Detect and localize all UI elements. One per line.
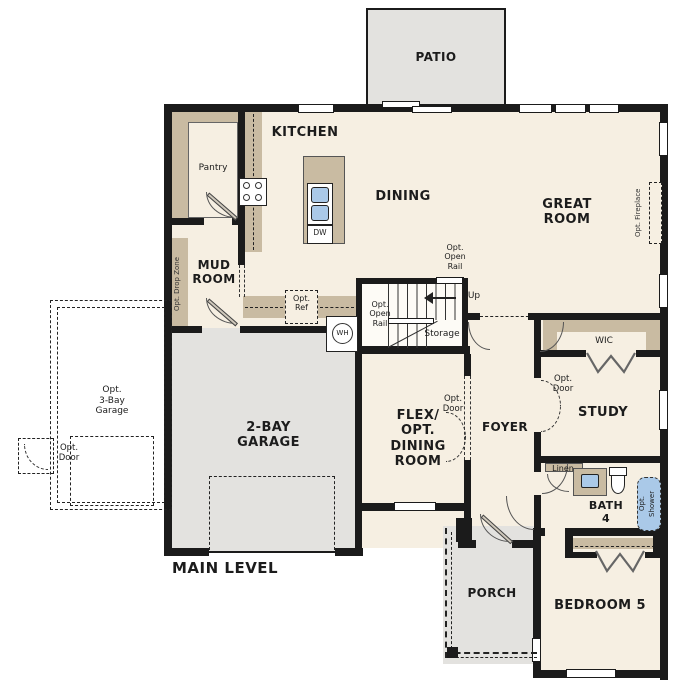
wall-greatroom-south	[528, 313, 665, 320]
burner-icon	[255, 194, 262, 201]
range-stove	[239, 178, 267, 206]
counter-br-dashline	[320, 307, 354, 308]
window-bedroom-bottom	[566, 669, 616, 678]
patio-label: PATIO	[366, 50, 506, 64]
porch-dash-left-1	[445, 528, 447, 658]
wall-flex-right-a	[464, 354, 471, 376]
porch-corner-post	[456, 518, 472, 542]
window-flex-bottom	[394, 502, 436, 511]
wall-hall-stub	[466, 313, 480, 320]
flex-label: FLEX/ OPT. DINING ROOM	[372, 408, 464, 469]
plan-title: MAIN LEVEL	[172, 560, 302, 578]
window-study-right	[659, 390, 668, 430]
bath-label: BATH 4	[583, 500, 629, 526]
up-label: Up	[462, 291, 486, 302]
pantry-wall-band-left	[172, 112, 188, 222]
water-heater-label: WH	[332, 329, 353, 337]
burner-icon	[243, 194, 250, 201]
garage-door-dashed	[209, 476, 335, 550]
mud-room-label: MUD ROOM	[188, 258, 240, 286]
toilet-bowl	[611, 475, 625, 494]
opt-open-rail-top-label: Opt. Open Rail	[434, 243, 476, 271]
bedroom-closet-shelf	[573, 538, 657, 549]
opt-garage-door-box	[18, 438, 54, 474]
wall-pantry-bottom-left	[172, 218, 204, 225]
closet-shelf-dashline	[575, 546, 655, 547]
opt-3bay-label: Opt. 3-Bay Garage	[86, 385, 138, 417]
wall-garage-bottom-left	[164, 548, 209, 556]
dining-label: DINING	[368, 189, 438, 204]
opt-fireplace-box	[649, 182, 662, 244]
patio-slider-panel-2	[412, 106, 452, 113]
opt-door-flex-label: Opt. Door	[436, 394, 470, 414]
pantry-wall-band-top	[172, 112, 238, 122]
opt-shower-label: Opt. Shower	[638, 480, 660, 528]
porch-dash-left-2	[451, 532, 452, 654]
wall-hall-right-a	[534, 463, 541, 472]
wall-flex-bottom-left	[356, 503, 396, 511]
wic-double-door	[586, 352, 636, 375]
sink-bowl-1	[311, 187, 329, 203]
wic-label: WIC	[584, 336, 624, 347]
opt-open-rail-left-label: Opt. Open Rail	[363, 300, 397, 328]
stair-rail-top	[436, 277, 464, 284]
wall-flex-bottom-right	[434, 503, 471, 511]
wall-bath-top	[534, 456, 665, 463]
wall-study-top-right	[636, 350, 665, 357]
wall-garage-right	[355, 326, 362, 556]
opt-door-garage-label: Opt. Door	[52, 443, 86, 463]
window-greatroom-top-3	[589, 104, 619, 113]
porch-dash-bottom-2	[451, 657, 537, 658]
window-greatroom-top-1	[519, 104, 552, 113]
dishwasher-label: DW	[307, 229, 333, 238]
closet-bottom-right	[645, 552, 662, 558]
window-greatroom-top-2	[555, 104, 586, 113]
stair-up-arrow-line	[432, 297, 456, 299]
opt-door-study-label: Opt. Door	[546, 374, 580, 394]
opt-drop-zone-label: Opt. Drop Zone	[173, 242, 187, 326]
linen-label: Linen	[543, 464, 583, 473]
opt-ref-label: Opt. Ref	[285, 294, 318, 313]
wall-study-left-a	[534, 357, 541, 378]
burner-icon	[243, 182, 250, 189]
opt-fireplace-label: Opt. Fireplace	[634, 178, 647, 248]
window-greatroom-right-1	[659, 122, 668, 156]
porch-dash-bottom-1	[445, 652, 537, 654]
foyer-label: FOYER	[478, 420, 532, 434]
garage-label: 2-BAY GARAGE	[226, 420, 311, 451]
counter-bl-dashline	[245, 307, 283, 308]
porch-label: PORCH	[454, 586, 530, 600]
wall-foyer-bottom-right	[512, 540, 541, 548]
bedroom-label: BEDROOM 5	[548, 598, 652, 613]
kitchen-label: KITCHEN	[255, 125, 355, 140]
storage-label: Storage	[418, 329, 466, 340]
window-greatroom-right-2	[659, 274, 668, 308]
foyer-cased-opening	[480, 316, 534, 317]
stair-up-arrow-head	[424, 292, 433, 304]
pantry-label: Pantry	[188, 163, 238, 174]
window-kitchen-top	[298, 104, 334, 113]
bedroom-closet-door	[595, 550, 645, 574]
wall-bath-bottom-a	[541, 528, 545, 536]
burner-icon	[255, 182, 262, 189]
study-label: STUDY	[572, 405, 634, 420]
sink-bowl-2	[311, 205, 329, 221]
floor-plan: DW WH Opt. Shower PATIO KITCHEN DINING G…	[0, 0, 687, 687]
window-bedroom-left	[532, 638, 541, 662]
porch-post	[447, 647, 458, 658]
closet-bottom-left	[565, 552, 597, 558]
great-room-label: GREAT ROOM	[528, 197, 606, 228]
garage-door-sill	[209, 551, 335, 553]
flex-cased-opening	[464, 376, 471, 460]
vanity-sink	[581, 474, 599, 488]
wall-flex-right-b	[464, 460, 471, 508]
